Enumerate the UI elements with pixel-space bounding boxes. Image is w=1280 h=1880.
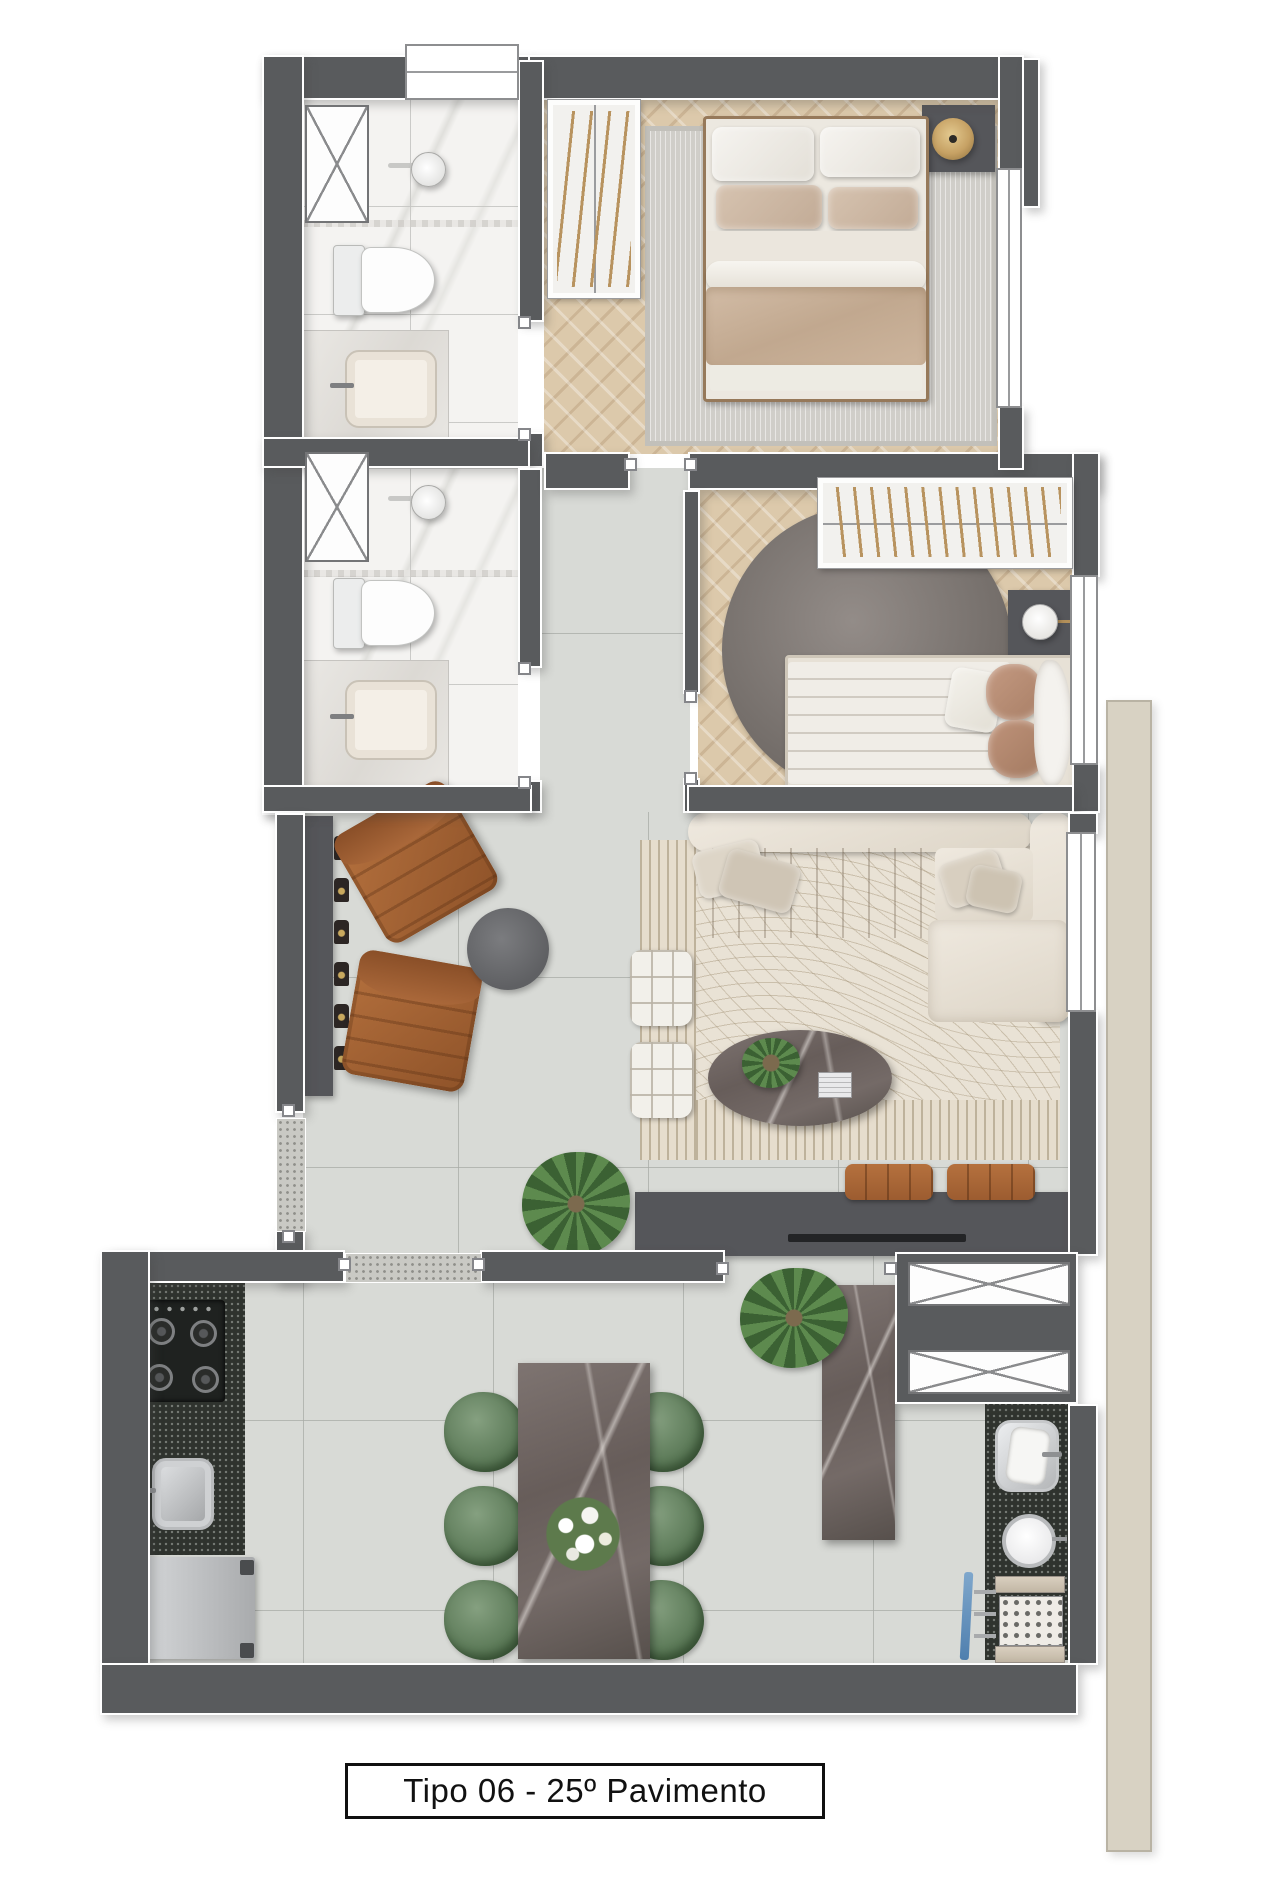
flower-centerpiece: [540, 1492, 626, 1576]
door-jamb-bath2-b: [518, 776, 531, 789]
wall-bath1-right-upper: [518, 60, 544, 322]
master-gold-lamp-center-dot: [949, 135, 957, 143]
door-jamb-bath2-a: [518, 662, 531, 675]
caption-text: Tipo 06 - 25º Pavimento: [403, 1772, 767, 1810]
kitchen-threshold: [345, 1253, 482, 1283]
living-window: [1066, 832, 1096, 1012]
second-closet-hangers: [829, 487, 1061, 557]
burner-2: [190, 1320, 217, 1347]
door-jamb-bath1-a: [518, 316, 531, 329]
laundry-round-basin: [1002, 1514, 1056, 1568]
bathroom1-vent-shaft: [305, 105, 369, 223]
wall-bottom: [100, 1663, 1078, 1715]
door-jamb-passage-a: [716, 1262, 729, 1275]
wall-bath-bottom: [262, 785, 532, 813]
burner-1: [148, 1318, 175, 1345]
wall-bath2-right-upper: [518, 468, 542, 668]
second-bedroom-closet: [818, 478, 1072, 568]
burner-4: [192, 1366, 219, 1393]
bottle-2: [334, 878, 349, 902]
dining-chair-left-3: [444, 1580, 526, 1660]
wall-living-right-mid: [1068, 1010, 1098, 1256]
refrigerator: [143, 1557, 255, 1659]
wall-kitchen-left: [100, 1250, 150, 1665]
caption-box: Tipo 06 - 25º Pavimento: [345, 1763, 825, 1819]
wall-bedroom2-right-lower: [1072, 763, 1100, 813]
rack-pipe-2: [974, 1612, 996, 1616]
bathroom2-faucet: [330, 714, 354, 719]
bathroom2-vent-shaft: [305, 452, 369, 562]
round-ottoman: [467, 908, 549, 990]
wall-bath-divider: [262, 437, 530, 468]
master-pillow-beige-right: [828, 187, 918, 229]
wall-bedroom2-right-upper: [1072, 452, 1100, 577]
quilted-pouf-2: [630, 1042, 692, 1118]
door-jamb-bath1-b: [518, 428, 531, 441]
drying-rack-top-bar: [995, 1576, 1065, 1593]
master-duvet: [706, 287, 926, 365]
leather-armchair-2: [340, 948, 484, 1094]
master-mattress-foot: [710, 365, 922, 391]
tv-sideboard: [635, 1192, 1070, 1256]
laundry-basin-handle: [1052, 1537, 1067, 1541]
door-jamb-kitchen-a: [338, 1258, 351, 1271]
wall-living-right-upper: [1068, 812, 1098, 834]
bench-cushion-1: [845, 1164, 933, 1200]
master-pillow-white-right: [820, 127, 920, 177]
master-bed: [703, 116, 929, 402]
door-jamb-entrance-b: [282, 1230, 295, 1243]
floor-plan-canvas: Tipo 06 - 25º Pavimento: [0, 0, 1280, 1880]
master-closet: [548, 100, 640, 298]
cooktop-knobs: [150, 1306, 212, 1312]
wall-left-bathrooms: [262, 55, 304, 815]
door-jamb-bedroom2-b: [684, 772, 697, 785]
master-closet-hangers: [557, 111, 631, 287]
bathroom1-shower-head: [411, 152, 446, 187]
door-jamb-master-b: [684, 458, 697, 471]
rack-pipe-3: [974, 1634, 996, 1638]
bathroom2-sink-basin: [345, 680, 437, 760]
second-bedroom-lamp: [1022, 604, 1058, 640]
drying-rack-bottom-bar: [995, 1646, 1065, 1663]
wall-master-right-upper: [998, 55, 1024, 170]
wall-laundry-right: [1068, 1404, 1098, 1665]
hallway-floor: [540, 468, 690, 816]
burner-3: [146, 1364, 173, 1391]
wall-bedroom2-bottom: [687, 785, 1074, 813]
wall-top-right: [528, 55, 1024, 100]
tv-panel: [788, 1234, 966, 1242]
refrigerator-handle-bottom: [240, 1643, 254, 1658]
bottle-5: [334, 1004, 349, 1028]
bathroom1-window: [405, 44, 519, 100]
kitchen-sink: [152, 1458, 214, 1530]
oval-coffee-table: [708, 1030, 892, 1126]
door-jamb-master-a: [624, 458, 637, 471]
wall-kitchen-top-mid: [480, 1250, 725, 1283]
sofa-chaise: [928, 920, 1068, 1022]
bathroom2-mosaic-strip: [302, 570, 518, 577]
living-console: [303, 816, 333, 1096]
wall-bedroom2-left-upper: [683, 490, 700, 694]
master-pillow-beige-left: [716, 185, 822, 229]
bottle-3: [334, 920, 349, 944]
bench-cushion-2: [947, 1164, 1035, 1200]
door-jamb-entrance-a: [282, 1104, 295, 1117]
bedroom2-window: [1070, 575, 1098, 765]
master-window: [996, 168, 1022, 408]
bathroom1-sink-basin: [345, 350, 437, 428]
neighbor-slab-strip: [1106, 700, 1152, 1852]
wall-master-right-lower: [998, 406, 1024, 470]
entrance-threshold: [276, 1118, 306, 1232]
bottle-4: [334, 962, 349, 986]
dining-chair-left-2: [444, 1486, 526, 1566]
dining-chair-left-1: [444, 1392, 526, 1472]
bathroom1-faucet: [330, 383, 354, 388]
quilted-pouf-1: [630, 950, 692, 1026]
drying-rack-mesh: [999, 1596, 1063, 1646]
bathroom2-shower-head: [411, 485, 446, 520]
refrigerator-handle-top: [240, 1560, 254, 1575]
door-jamb-bedroom2-a: [684, 690, 697, 703]
rack-pipe-1: [974, 1590, 996, 1594]
wall-master-right-notch: [1022, 58, 1040, 208]
wall-living-left-upper: [275, 813, 305, 1113]
single-bed-throw: [1034, 660, 1072, 786]
wall-master-bottom-left: [544, 452, 630, 490]
laundry-faucet: [1042, 1452, 1062, 1457]
technical-shaft-2: [908, 1350, 1070, 1394]
door-jamb-kitchen-b: [472, 1258, 485, 1271]
door-jamb-passage-b: [884, 1262, 897, 1275]
second-bedroom-bed: [785, 655, 1075, 789]
technical-shaft-1: [908, 1262, 1070, 1306]
coffee-table-book: [818, 1072, 852, 1098]
master-pillow-white-left: [712, 127, 814, 181]
